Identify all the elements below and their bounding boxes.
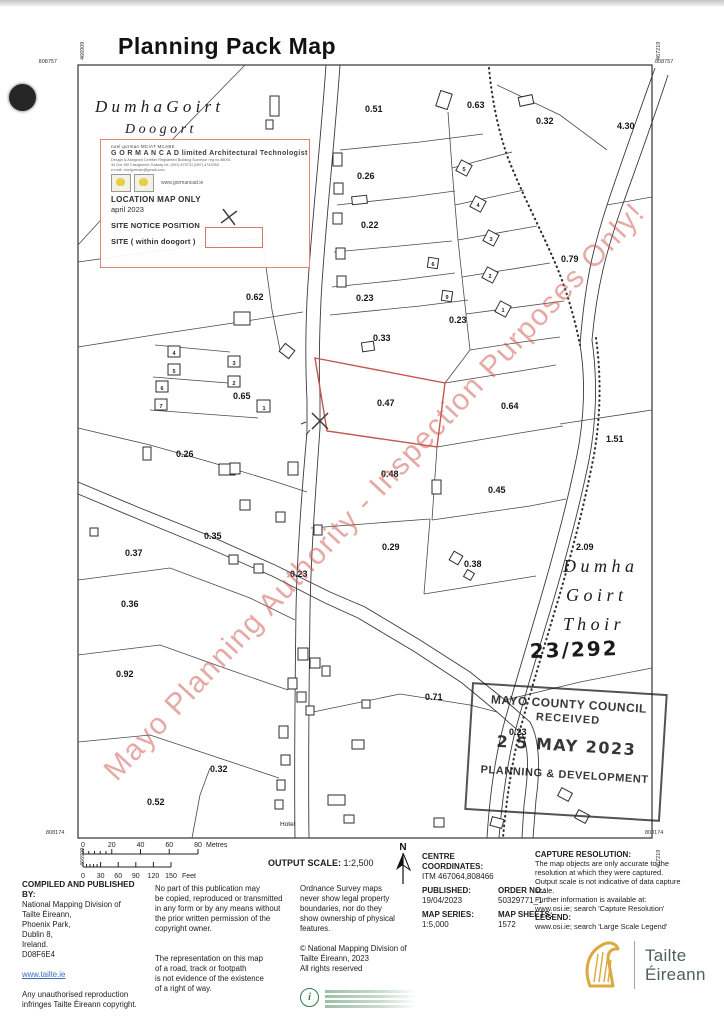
svg-text:0.35: 0.35 [204, 531, 222, 541]
stamp-received: RECEIVED [536, 711, 601, 727]
svg-text:0.32: 0.32 [536, 116, 554, 126]
svg-text:0.45: 0.45 [488, 485, 506, 495]
svg-text:1.51: 1.51 [606, 434, 624, 444]
svg-text:0.36: 0.36 [121, 599, 139, 609]
tailte-eireann-logo: Tailte Éireann [578, 940, 706, 990]
legend-site-rectangle [205, 227, 263, 248]
svg-text:0: 0 [81, 873, 85, 880]
licence-info: i [300, 988, 417, 1010]
svg-text:Metres: Metres [206, 842, 228, 849]
svg-text:3: 3 [489, 237, 492, 243]
firm-website: www.gormancad.ie [161, 180, 203, 186]
compiled-heading: COMPILED AND PUBLISHED BY: [22, 880, 150, 900]
svg-text:D o o g o r t: D o o g o r t [124, 122, 195, 137]
output-scale-label: OUTPUT SCALE: [268, 858, 341, 868]
svg-text:80: 80 [194, 842, 202, 849]
architect-name: noel gorman MCIAT MCABE [111, 144, 309, 149]
boundaries-notice-column: Ordnance Survey mapsnever show legal pro… [300, 884, 440, 974]
svg-text:5: 5 [462, 167, 465, 173]
compiled-published-by: COMPILED AND PUBLISHED BY: National Mapp… [22, 880, 150, 1010]
capture-resolution: CAPTURE RESOLUTION: The map objects are … [535, 850, 715, 931]
hotel-label: Hotel [280, 821, 296, 828]
svg-text:20: 20 [108, 842, 116, 849]
county-council-received-stamp: MAYO COUNTY COUNCIL RECEIVED 2 5 MAY 202… [464, 682, 667, 822]
firm-detail-2: 34 Gor Hill Claughwell, Galway tel: (091… [111, 163, 309, 167]
svg-text:T h o i r: T h o i r [563, 614, 622, 634]
svg-text:150: 150 [165, 873, 177, 880]
svg-text:2: 2 [232, 381, 235, 387]
svg-text:0.37: 0.37 [125, 548, 143, 558]
svg-text:0.32: 0.32 [210, 764, 228, 774]
svg-text:0.63: 0.63 [467, 100, 485, 110]
capture-heading: CAPTURE RESOLUTION: [535, 850, 715, 859]
svg-text:0.33: 0.33 [373, 333, 391, 343]
firm-logo-1 [111, 174, 131, 192]
svg-text:90: 90 [132, 873, 140, 880]
firm-name: G O R M A N C A D limited Architectural … [111, 150, 309, 157]
tailte-link: www.tailte.ie [22, 970, 65, 979]
centre-label-1: CENTRE [422, 852, 494, 862]
series-sheets: MAP SERIES: MAP SHEETS: 1:5,000 1572 [422, 910, 553, 930]
firm-detail-1: Design & Assigned Certifier Registered B… [111, 158, 309, 162]
map-date: april 2023 [111, 205, 309, 214]
svg-text:5: 5 [172, 369, 175, 375]
scale-bar-metres: 020406080Metres [81, 842, 228, 854]
svg-text:Feet: Feet [182, 873, 196, 880]
svg-text:D u m h a G o i r t: D u m h a G o i r t [94, 97, 221, 116]
legend-line: www.osi.ie; search 'Large Scale Legend' [535, 922, 715, 931]
centre-label-2: COORDINATES: [422, 862, 494, 872]
svg-text:7: 7 [159, 404, 162, 410]
svg-text:0.23: 0.23 [449, 315, 467, 325]
svg-text:60: 60 [165, 842, 173, 849]
svg-text:466909: 466909 [80, 42, 86, 60]
svg-text:0.65: 0.65 [233, 391, 251, 401]
copyright-text: No part of this publication maybe copied… [155, 884, 295, 934]
svg-text:0.92: 0.92 [116, 669, 134, 679]
reproduction-notice: Any unauthorised reproductioninfringes T… [22, 990, 150, 1010]
svg-text:120: 120 [148, 873, 160, 880]
copyright-notice-column: No part of this publication maybe copied… [155, 884, 295, 994]
svg-text:0.29: 0.29 [382, 542, 400, 552]
output-scale-value: 1:2,500 [344, 858, 374, 868]
svg-text:0.23: 0.23 [356, 293, 374, 303]
logo-divider [634, 941, 635, 989]
legend-x-symbol [218, 206, 240, 228]
location-map-only-label: LOCATION MAP ONLY [111, 195, 309, 204]
rights-reserved-text: © National Mapping Division ofTailte Éir… [300, 944, 440, 974]
svg-text:4.30: 4.30 [617, 121, 635, 131]
licence-smallprint [325, 988, 417, 1010]
scale-bar-feet: 0306090120150Feet [81, 862, 196, 880]
svg-text:0.26: 0.26 [357, 171, 375, 181]
stamp-department: PLANNING & DEVELOPMENT [480, 764, 649, 786]
svg-text:0.22: 0.22 [361, 220, 379, 230]
capture-lines: The map objects are only accurate to the… [535, 859, 715, 913]
planning-pack-map-page: Planning Pack Map 808757 808757 808174 8… [0, 0, 724, 1024]
svg-text:G o i r t: G o i r t [566, 585, 624, 605]
svg-text:0.71: 0.71 [425, 692, 443, 702]
svg-text:0.38: 0.38 [464, 559, 482, 569]
output-scale: OUTPUT SCALE: 1:2,500 [268, 858, 374, 868]
svg-text:0.51: 0.51 [365, 104, 383, 114]
svg-text:6: 6 [160, 386, 163, 392]
svg-text:3: 3 [232, 361, 235, 367]
svg-text:0: 0 [81, 842, 85, 849]
svg-text:6: 6 [431, 262, 434, 268]
firm-logos: www.gormancad.ie [111, 174, 309, 192]
svg-text:D u m h a: D u m h a [562, 556, 634, 576]
svg-text:N: N [399, 842, 406, 853]
right-of-way-text: The representation on this mapof a road,… [155, 954, 295, 994]
svg-text:808757: 808757 [39, 59, 57, 65]
info-icon: i [300, 988, 319, 1007]
svg-text:467219: 467219 [656, 42, 662, 60]
svg-text:808174: 808174 [46, 830, 64, 836]
svg-text:0.52: 0.52 [147, 797, 165, 807]
svg-text:0.64: 0.64 [501, 401, 519, 411]
firm-email: e-mail: noelgorman@gmail.com [111, 168, 309, 172]
publisher-address: National Mapping Division ofTailte Éirea… [22, 900, 150, 960]
centre-coordinates: CENTRE COORDINATES: ITM 467064,808466 [422, 852, 494, 882]
svg-text:1: 1 [262, 406, 265, 412]
north-arrow: N [392, 840, 414, 886]
svg-text:0.47: 0.47 [377, 398, 395, 408]
firm-logo-2 [134, 174, 154, 192]
plot-reference: 23/292 [529, 636, 619, 663]
logo-wordmark: Tailte Éireann [645, 946, 706, 984]
svg-text:40: 40 [137, 842, 145, 849]
stamp-date: 2 5 MAY 2023 [496, 732, 637, 760]
site-notice-x-mark [301, 413, 328, 435]
svg-text:9: 9 [445, 295, 448, 301]
svg-text:1: 1 [501, 308, 504, 314]
legend-heading: LEGEND: [535, 913, 715, 922]
centre-value: ITM 467064,808466 [422, 872, 494, 882]
svg-text:2.09: 2.09 [576, 542, 594, 552]
svg-text:0.62: 0.62 [246, 292, 264, 302]
svg-text:0.26: 0.26 [176, 449, 194, 459]
location-map-legend-box: noel gorman MCIAT MCABE G O R M A N C A … [100, 139, 310, 268]
published-order: PUBLISHED: ORDER NO.: 19/04/2023 5032977… [422, 886, 546, 906]
svg-text:30: 30 [97, 873, 105, 880]
svg-text:2: 2 [488, 274, 491, 280]
boundaries-text: Ordnance Survey mapsnever show legal pro… [300, 884, 440, 934]
svg-text:60: 60 [114, 873, 122, 880]
svg-text:808174: 808174 [645, 830, 663, 836]
harp-icon [578, 940, 624, 990]
